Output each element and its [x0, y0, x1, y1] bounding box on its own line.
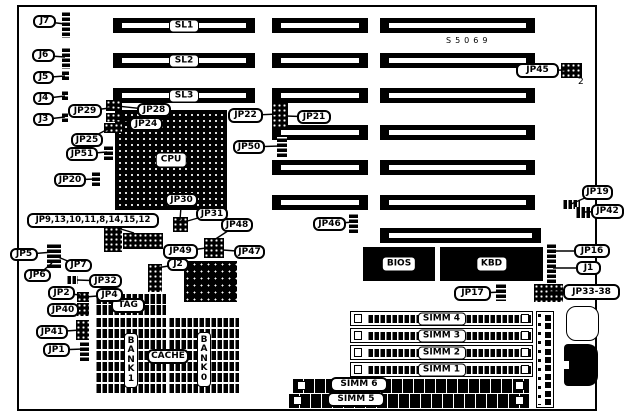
callout-jp47: JP47 — [234, 245, 265, 259]
simm-label: SIMM 2 — [418, 346, 466, 359]
cpu-label: CPU — [156, 153, 187, 168]
callout-jp17: JP17 — [454, 286, 491, 301]
callout-j7: J7 — [33, 15, 56, 28]
callout-jp40: JP40 — [47, 303, 79, 317]
callout-jp48: JP48 — [221, 218, 253, 232]
callout-jp24: JP24 — [129, 117, 163, 131]
callout-jp41: JP41 — [36, 325, 68, 339]
slot-label-sl3: SL3 — [169, 89, 199, 102]
slot-label-sl1: SL1 — [169, 19, 199, 32]
callout-jp2: JP2 — [48, 286, 75, 300]
callout-j1: J1 — [576, 261, 601, 275]
simm-label: SIMM 6 — [330, 377, 388, 392]
callout-jp46: JP46 — [313, 217, 346, 231]
callout-j6: J6 — [32, 49, 55, 62]
callout-jp6: JP6 — [24, 269, 51, 282]
callout-j4: J4 — [33, 92, 54, 105]
cache-label: CACHE — [147, 349, 189, 364]
bank1-label: BANK1 — [124, 333, 138, 388]
callout-jp33-38: JP33-38 — [563, 284, 620, 300]
callout-jp29: JP29 — [68, 104, 102, 118]
callout-jp21: JP21 — [297, 110, 331, 124]
callout-j5: J5 — [33, 71, 54, 84]
callout-jp28: JP28 — [137, 103, 171, 117]
callout-jp19: JP19 — [582, 185, 613, 200]
simm-label: SIMM 4 — [418, 312, 466, 325]
bios-label: BIOS — [382, 257, 416, 272]
callout-jp42: JP42 — [591, 204, 624, 219]
bank0-label: BANK0 — [197, 332, 211, 387]
simm-label: SIMM 5 — [327, 392, 385, 407]
callout-jp16: JP16 — [574, 244, 610, 258]
kbd-label: KBD — [476, 257, 507, 272]
callout-jp50: JP50 — [233, 140, 265, 154]
callout-jp20: JP20 — [54, 173, 86, 187]
callout-j3: J3 — [33, 113, 54, 126]
callout-jp7: JP7 — [65, 259, 92, 272]
callout-jp4: JP4 — [96, 288, 123, 302]
slot-label-sl2: SL2 — [169, 54, 199, 67]
callout-jp8-15-group: JP9,13,10,11,8,14,15,12 — [27, 213, 159, 228]
callout-jp25: JP25 — [71, 133, 103, 147]
callout-jp32: JP32 — [89, 274, 122, 288]
callout-jp45: JP45 — [516, 63, 559, 78]
callout-jp51: JP51 — [66, 147, 98, 161]
simm-label: SIMM 1 — [418, 363, 466, 376]
motherboard-diagram: SL1SL2SL3CPUBIOSKBDTAGCACHEBANK1BANK0SIM… — [0, 0, 630, 420]
callout-jp30: JP30 — [165, 193, 198, 207]
simm-label: SIMM 3 — [418, 329, 466, 342]
callout-jp22: JP22 — [228, 108, 263, 123]
callout-jp1: JP1 — [43, 343, 70, 357]
callout-j2: J2 — [167, 258, 189, 271]
callout-jp5: JP5 — [10, 248, 38, 261]
callout-jp49: JP49 — [163, 244, 198, 259]
